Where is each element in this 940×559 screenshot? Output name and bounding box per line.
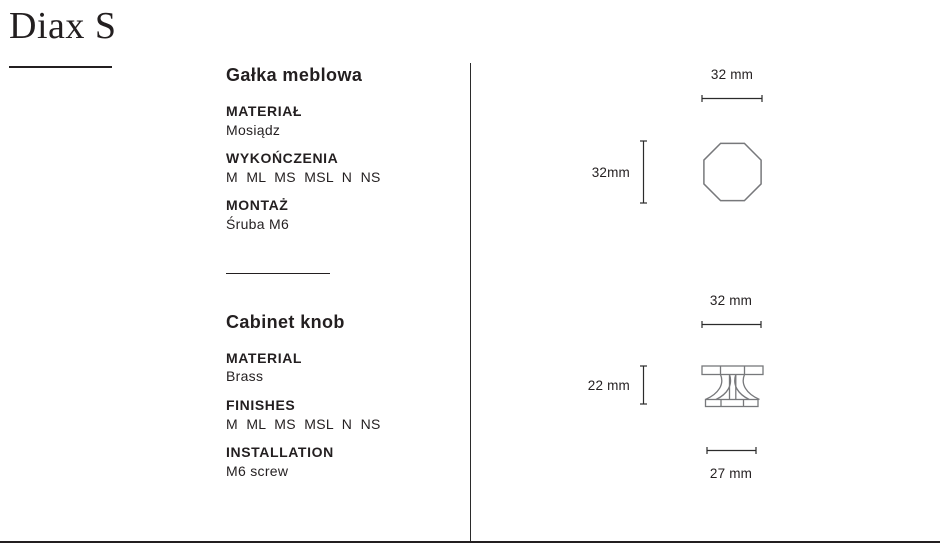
spec-label-material-en: MATERIAL <box>226 350 302 366</box>
top-view-width-dimension-line <box>702 95 762 102</box>
bottom-rule <box>0 541 940 543</box>
spec-value-finishes-en: M ML MS MSL N NS <box>226 416 381 432</box>
spec-value-material-en: Brass <box>226 368 263 384</box>
top-view-height-dimension-line <box>640 141 647 203</box>
dim-label-side-view-base-width: 27 mm <box>691 466 771 481</box>
spec-label-finishes-en: FINISHES <box>226 397 295 413</box>
spec-label-material-pl: MATERIAŁ <box>226 103 302 119</box>
section-divider <box>226 273 330 274</box>
side-view-height-dimension-line <box>640 366 647 404</box>
datasheet-page: Diax S Gałka meblowa MATERIAŁ Mosiądz WY… <box>0 0 940 559</box>
side-view-base-width-dimension-line <box>707 447 756 454</box>
knob-side-profile <box>702 366 763 407</box>
dim-label-side-view-height: 22 mm <box>574 378 630 393</box>
title-underline <box>9 66 112 68</box>
side-view-top-width-dimension-line <box>702 321 761 328</box>
section-title-en: Cabinet knob <box>226 312 345 333</box>
spec-value-material-pl: Mosiądz <box>226 122 280 138</box>
spec-label-installation-pl: MONTAŻ <box>226 197 288 213</box>
section-title-pl: Gałka meblowa <box>226 65 362 86</box>
spec-value-installation-en: M6 screw <box>226 463 288 479</box>
spec-label-installation-en: INSTALLATION <box>226 444 334 460</box>
dim-label-top-view-height: 32mm <box>578 165 630 180</box>
page-title: Diax S <box>9 4 117 48</box>
octagon-knob-top-view <box>704 143 761 200</box>
spec-value-installation-pl: Śruba M6 <box>226 216 289 232</box>
dim-label-side-view-top-width: 32 mm <box>691 293 771 308</box>
vertical-divider <box>470 63 471 542</box>
spec-value-finishes-pl: M ML MS MSL N NS <box>226 169 381 185</box>
dim-label-top-view-width: 32 mm <box>692 67 772 82</box>
spec-label-finishes-pl: WYKOŃCZENIA <box>226 150 338 166</box>
